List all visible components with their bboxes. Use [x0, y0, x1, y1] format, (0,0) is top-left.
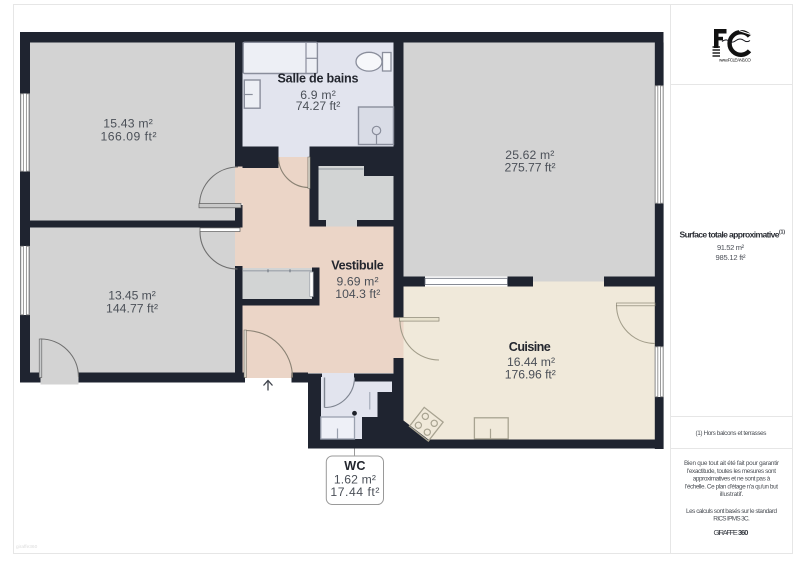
svg-text:Bien que tout ait été fait pou: Bien que tout ait été fait pour garantir: [684, 460, 780, 467]
svg-text:GIRAFFE: GIRAFFE: [714, 528, 738, 537]
svg-text:15.43 m²: 15.43 m²: [103, 117, 153, 131]
svg-text:WC: WC: [344, 459, 365, 473]
svg-text:l'exactitude, toutes les mesur: l'exactitude, toutes les mesures sont: [687, 468, 776, 475]
svg-text:176.96 ft²: 176.96 ft²: [505, 368, 556, 382]
svg-text:(1) Hors balcons et terrasses: (1) Hors balcons et terrasses: [696, 430, 767, 437]
svg-text:275.77 ft²: 275.77 ft²: [505, 161, 556, 175]
svg-text:104.3 ft²: 104.3 ft²: [335, 287, 380, 301]
svg-text:approximatives et ne sont pas: approximatives et ne sont pas à: [693, 476, 771, 483]
svg-text:www.FCLEAN3.CO: www.FCLEAN3.CO: [719, 58, 751, 63]
svg-text:Les calculs sont basés sur le: Les calculs sont basés sur le standard: [686, 508, 777, 515]
svg-text:13.45 m²: 13.45 m²: [108, 289, 156, 303]
svg-text:91.52 m²: 91.52 m²: [717, 243, 744, 252]
svg-text:985.12 ft²: 985.12 ft²: [716, 253, 746, 262]
svg-text:Salle de bains: Salle de bains: [278, 72, 359, 86]
svg-text:l'échelle. Ce plan d'étage n'a: l'échelle. Ce plan d'étage n'a qu'un but: [685, 483, 778, 490]
svg-text:Vestibule: Vestibule: [331, 259, 384, 273]
svg-text:74.27 ft²: 74.27 ft²: [296, 99, 341, 113]
svg-text:166.09 ft²: 166.09 ft²: [101, 130, 157, 144]
svg-text:giraffe360: giraffe360: [16, 544, 38, 550]
svg-text:RICS IPMS 3C.: RICS IPMS 3C.: [713, 516, 750, 523]
svg-text:Cuisine: Cuisine: [509, 340, 551, 354]
svg-text:144.77 ft²: 144.77 ft²: [106, 302, 158, 316]
svg-text:(1): (1): [779, 230, 785, 236]
svg-text:360: 360: [738, 528, 748, 537]
svg-text:Surface totale approximative: Surface totale approximative: [680, 229, 780, 239]
svg-text:17.44 ft²: 17.44 ft²: [330, 485, 379, 499]
svg-text:illustratif.: illustratif.: [720, 491, 744, 498]
